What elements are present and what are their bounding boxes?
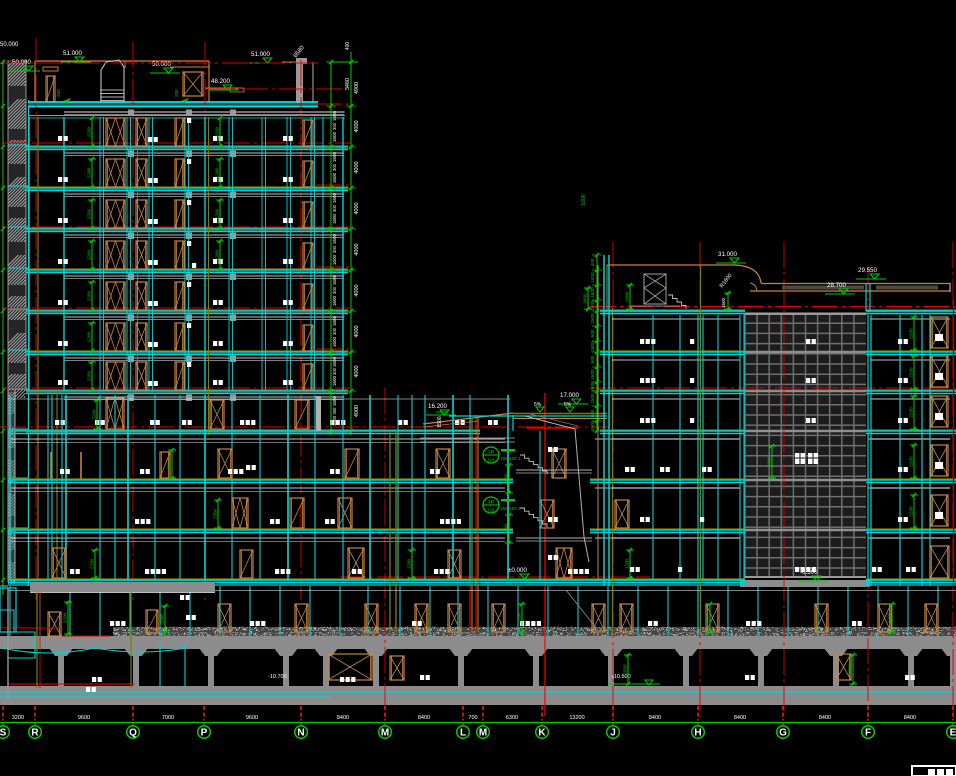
svg-text:1600: 1600 [590, 381, 595, 392]
svg-text:2200: 2200 [87, 290, 92, 301]
svg-text:300: 300 [332, 122, 337, 130]
svg-text:2200: 2200 [215, 208, 220, 219]
svg-text:DBJ403-1: DBJ403-1 [501, 456, 521, 461]
svg-text:1600: 1600 [332, 110, 337, 121]
svg-text:400: 400 [345, 42, 351, 51]
svg-text:1600: 1600 [332, 415, 337, 426]
svg-text:1200: 1200 [407, 558, 412, 569]
svg-text:31.000: 31.000 [718, 251, 737, 258]
svg-text:200: 200 [56, 89, 61, 97]
svg-text:600: 600 [590, 329, 595, 337]
svg-text:300: 300 [332, 245, 337, 253]
svg-text:600: 600 [590, 355, 595, 363]
svg-text:1600: 1600 [332, 192, 337, 203]
svg-text:13200: 13200 [569, 715, 584, 721]
svg-text:2200: 2200 [63, 612, 68, 623]
svg-text:2500: 2500 [623, 664, 628, 675]
svg-text:G: G [779, 728, 787, 739]
svg-text:1600: 1600 [332, 233, 337, 244]
svg-text:8400: 8400 [337, 715, 349, 721]
svg-text:2200: 2200 [87, 167, 92, 178]
svg-text:M: M [381, 728, 389, 739]
svg-text:1600: 1600 [581, 194, 587, 205]
svg-text:H: H [694, 728, 701, 739]
svg-text:2200: 2200 [87, 249, 92, 260]
svg-text:1600: 1600 [590, 300, 595, 311]
svg-text:1600: 1600 [332, 356, 337, 367]
svg-text:2200: 2200 [87, 370, 92, 381]
svg-text:1600: 1600 [332, 295, 337, 306]
svg-text:8400: 8400 [734, 715, 746, 721]
svg-text:9600: 9600 [78, 715, 90, 721]
svg-text:1B: 1B [488, 449, 494, 455]
svg-text:300: 300 [332, 286, 337, 294]
svg-text:300: 300 [332, 367, 337, 375]
svg-text:1600: 1600 [332, 336, 337, 347]
svg-text:2200: 2200 [517, 612, 522, 623]
svg-text:2200: 2200 [90, 558, 95, 569]
svg-text:P: P [201, 728, 208, 739]
svg-text:1500: 1500 [590, 313, 595, 324]
svg-text:118: 118 [488, 508, 496, 513]
svg-text:1600: 1600 [332, 131, 337, 142]
svg-text:8400: 8400 [819, 715, 831, 721]
svg-text:1B: 1B [488, 499, 494, 505]
svg-text:51.000: 51.000 [63, 50, 82, 57]
svg-text:4000: 4000 [354, 405, 360, 417]
svg-text:2200: 2200 [87, 126, 92, 137]
svg-text:17.000: 17.000 [560, 392, 579, 399]
svg-text:4000: 4000 [354, 202, 360, 214]
svg-text:DBJ403-1: DBJ403-1 [501, 506, 521, 511]
svg-text:R: R [31, 728, 39, 739]
svg-text:9600: 9600 [246, 715, 258, 721]
svg-text:300: 300 [332, 204, 337, 212]
svg-text:2200: 2200 [767, 456, 772, 467]
svg-text:±0.000: ±0.000 [508, 567, 527, 574]
svg-text:16.200: 16.200 [428, 403, 447, 410]
svg-text:4000: 4000 [354, 325, 360, 337]
svg-text:118: 118 [488, 458, 496, 463]
svg-text:-10.700: -10.700 [268, 674, 287, 680]
svg-text:6300: 6300 [506, 715, 518, 721]
svg-text:1600: 1600 [590, 287, 595, 298]
svg-text:1600: 1600 [332, 213, 337, 224]
svg-text:2200: 2200 [215, 126, 220, 137]
svg-text:1100: 1100 [504, 524, 509, 534]
svg-text:1600: 1600 [332, 254, 337, 265]
svg-text:1600: 1600 [332, 375, 337, 386]
svg-text:2200: 2200 [215, 167, 220, 178]
svg-text:2200: 2200 [167, 458, 172, 469]
svg-text:50.000: 50.000 [152, 61, 171, 68]
svg-text:300: 300 [332, 327, 337, 335]
svg-text:3200: 3200 [12, 715, 24, 721]
svg-text:1900: 1900 [590, 420, 595, 431]
svg-text:29.550: 29.550 [858, 267, 877, 274]
svg-text:1100: 1100 [504, 474, 509, 484]
svg-text:1200: 1200 [160, 613, 165, 624]
svg-text:2200: 2200 [215, 249, 220, 260]
svg-text:1500: 1500 [437, 416, 443, 427]
svg-text:8400: 8400 [418, 715, 430, 721]
svg-text:700: 700 [468, 715, 477, 721]
svg-text:300: 300 [332, 407, 337, 415]
svg-text:400: 400 [590, 258, 595, 266]
svg-text:1600: 1600 [590, 369, 595, 380]
svg-text:2200: 2200 [909, 367, 914, 378]
svg-text:8400: 8400 [649, 715, 661, 721]
svg-text:3460: 3460 [345, 78, 351, 90]
svg-text:51.000: 51.000 [251, 51, 270, 58]
svg-text:2200: 2200 [909, 328, 914, 339]
svg-text:2200: 2200 [909, 506, 914, 517]
svg-text:2200: 2200 [87, 331, 92, 342]
svg-text:600: 600 [590, 409, 595, 417]
svg-text:2200: 2200 [887, 612, 892, 623]
svg-text:1400: 1400 [590, 272, 595, 283]
svg-text:4000: 4000 [354, 243, 360, 255]
svg-text:2200: 2200 [909, 407, 914, 418]
svg-text:S: S [0, 728, 7, 739]
svg-text:7000: 7000 [162, 715, 174, 721]
svg-text:1600: 1600 [332, 395, 337, 406]
svg-text:300: 300 [332, 163, 337, 171]
svg-text:L: L [460, 728, 466, 739]
svg-text:1600: 1600 [332, 151, 337, 162]
svg-text:8400: 8400 [904, 715, 916, 721]
svg-text:4000: 4000 [354, 365, 360, 377]
svg-text:Q: Q [129, 728, 137, 739]
svg-text:2500: 2500 [848, 664, 853, 675]
svg-text:4000: 4000 [354, 161, 360, 173]
svg-text:M: M [479, 728, 487, 739]
svg-text:1600: 1600 [583, 293, 588, 304]
svg-text:K: K [538, 728, 546, 739]
svg-text:2350: 2350 [213, 508, 218, 519]
svg-text:F: F [865, 728, 871, 739]
svg-text:2200: 2200 [705, 612, 710, 623]
svg-text:2200: 2200 [87, 208, 92, 219]
svg-text:1600: 1600 [625, 291, 630, 302]
svg-text:28.700: 28.700 [827, 282, 846, 289]
svg-text:J: J [610, 728, 616, 739]
svg-text:4900: 4900 [354, 82, 360, 94]
svg-text:1600: 1600 [721, 297, 726, 308]
svg-text:1600: 1600 [590, 341, 595, 352]
svg-text:-0.500: -0.500 [800, 569, 818, 576]
svg-text:50.000: 50.000 [0, 42, 19, 48]
svg-text:1200: 1200 [625, 558, 630, 569]
svg-text:1600: 1600 [332, 315, 337, 326]
svg-text:2200: 2200 [92, 409, 97, 420]
svg-text:2200: 2200 [909, 456, 914, 467]
svg-text:1600: 1600 [332, 172, 337, 183]
svg-text:200: 200 [174, 89, 179, 97]
svg-text:N: N [297, 728, 304, 739]
svg-text:1600: 1600 [332, 274, 337, 285]
svg-text:E: E [950, 728, 956, 739]
svg-text:1500: 1500 [590, 393, 595, 404]
svg-text:4000: 4000 [354, 120, 360, 132]
svg-text:4000: 4000 [354, 284, 360, 296]
svg-text:48.200: 48.200 [211, 78, 230, 85]
